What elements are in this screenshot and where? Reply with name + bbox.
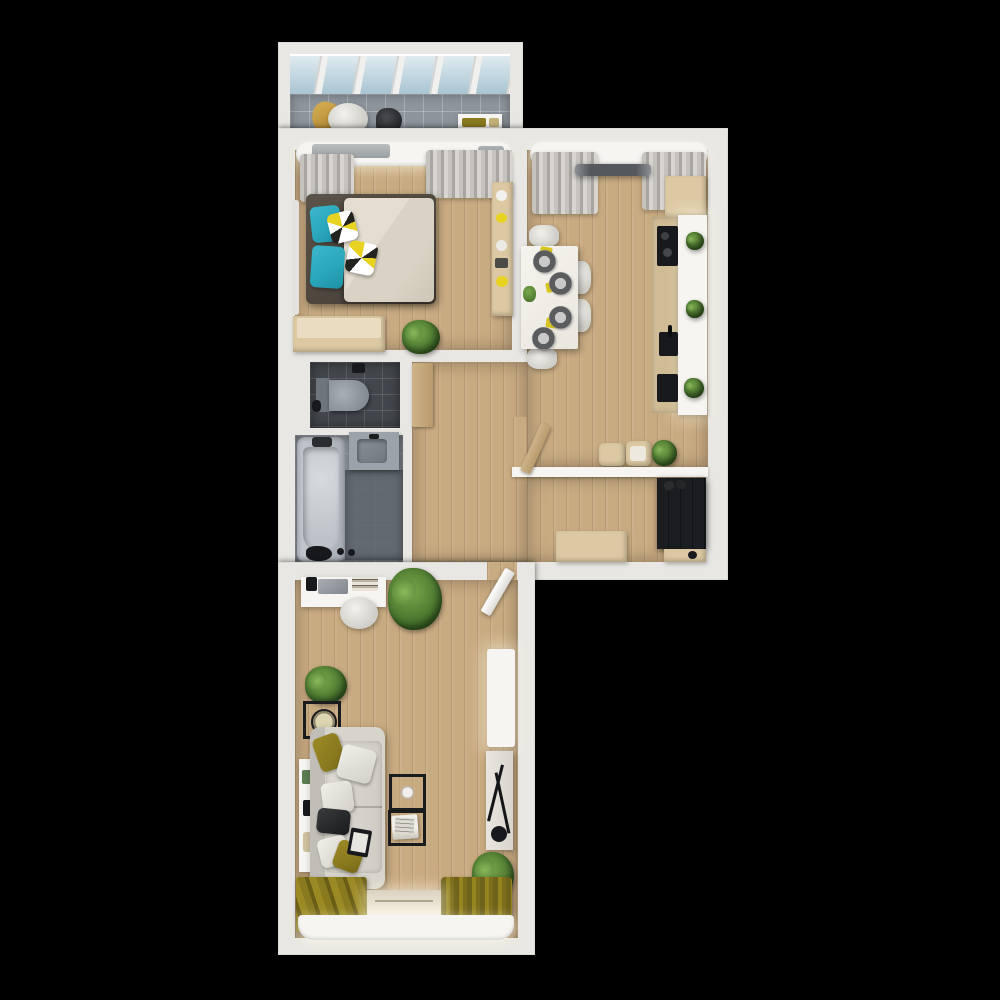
desk-laptop [318,579,348,594]
living-room-large-plant [388,568,442,630]
kitchen-curtain-left [532,152,598,214]
table-centerpiece [523,286,536,302]
kitchen-upper-cabinet [665,176,706,217]
place-setting-1 [533,250,556,273]
living-room-window-pelmet [298,915,514,940]
hallway-bench [556,531,627,562]
wc-shelf-items [352,363,365,373]
counter-plant-3 [684,378,704,398]
hallway-drawer-cabinet [664,549,706,562]
threshold-step-line [375,900,433,902]
kitchen-oven [657,374,678,402]
hallway-cabinet-decor [688,551,697,559]
shelf-decor-yellow-1 [496,213,507,223]
shelf-decor-white-2 [496,240,507,251]
sofa-pillow-black [316,807,351,835]
bedroom-plant [402,320,440,354]
balcony-shelf-books [462,118,486,127]
shelf-decor-dark [495,258,508,268]
coffee-table-plate [401,786,414,799]
counter-plant-2 [686,300,704,318]
washbasin-faucet [369,434,379,439]
place-setting-3 [549,306,572,329]
dining-chair-bottom [527,347,557,369]
place-setting-2 [549,272,572,295]
washbasin [357,439,387,463]
counter-plant-1 [686,232,704,250]
floor-cushion-pad [630,446,646,461]
desk-organizer [306,577,317,591]
kitchen-track-light [575,164,651,176]
shelf-decor-yellow-2 [496,276,508,287]
tall-cabinet [487,649,515,747]
magazine-top [395,818,415,836]
shower-accessory-dot-2 [348,549,355,556]
place-setting-4 [532,327,555,350]
bedroom-dresser-top [297,318,381,338]
dining-chair-top [529,225,559,247]
kitchen-floor-plant [652,440,677,466]
bathtub-faucet [312,437,332,447]
floor-plan-canvas [0,0,1000,1000]
shower-accessory-dot-1 [337,548,344,555]
cooktop-burner [661,232,669,240]
bathtub-basin [303,447,339,552]
kitchen-bottom-wall [512,467,708,477]
shower-accessories [306,546,332,561]
balcony-shelf-box [489,118,499,127]
kitchen-faucet [668,325,672,337]
living-room-small-plant [305,666,347,704]
toilet-bowl [329,380,369,411]
wc-door-leaf [412,363,433,427]
bathroom-floor-dark-zone [345,470,403,560]
cooktop-burner-2 [663,248,672,257]
decor-sculpture-ball [491,826,507,842]
toilet-brush [312,400,321,412]
desk-chair [340,597,378,629]
bed-teal-pillow-2 [310,245,346,289]
desk-books [352,577,378,591]
floor-cushion-1 [599,443,625,466]
bedroom-radiator [292,200,299,315]
balcony-glass-roof [290,54,510,94]
shelf-decor-white-1 [496,190,507,201]
